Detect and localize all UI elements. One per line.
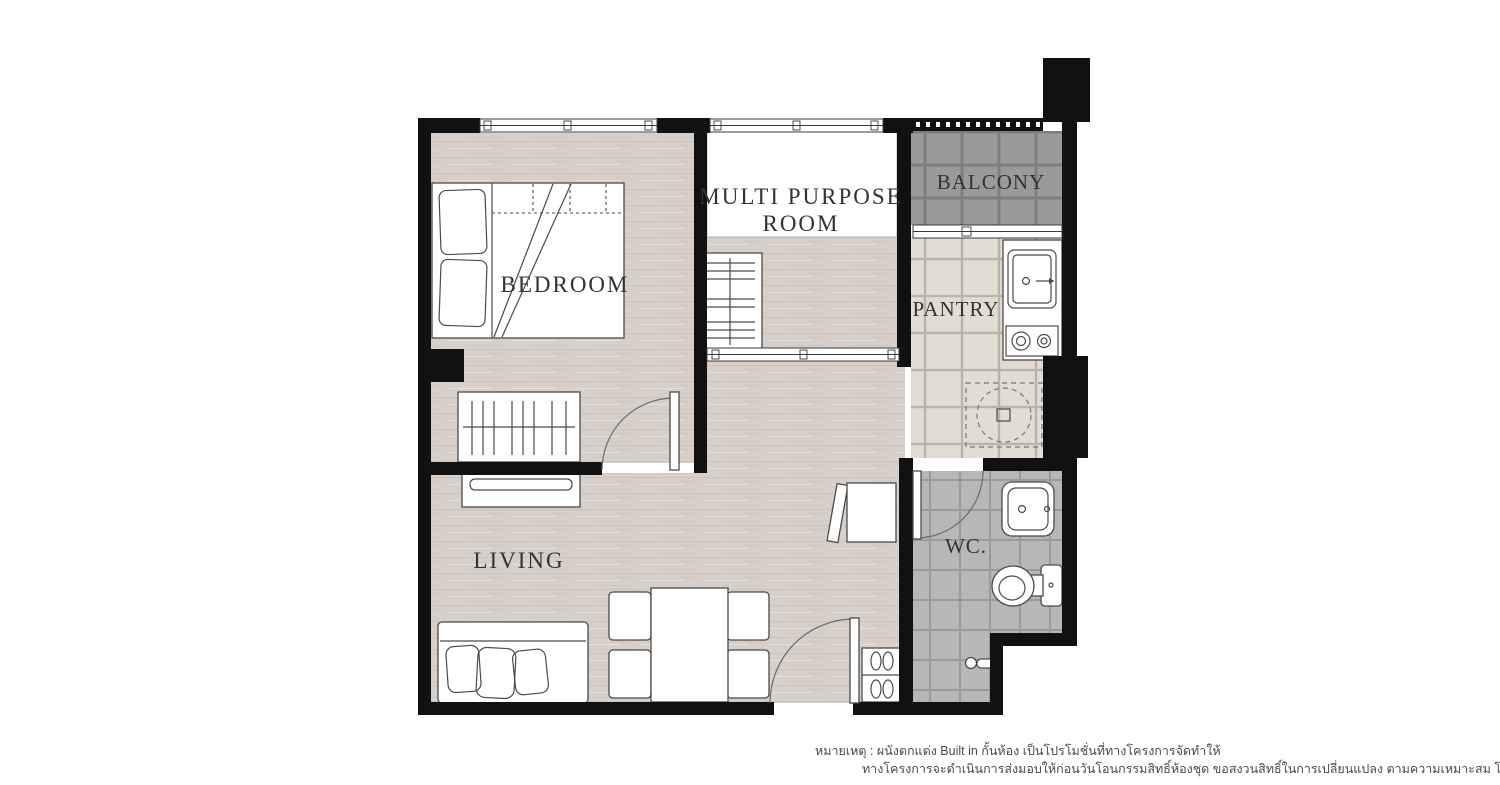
wall-top (418, 118, 480, 133)
wall-bedroom-bottom (430, 462, 602, 475)
shoe-cabinet-icon (862, 648, 903, 702)
toilet-icon (992, 565, 1062, 606)
bedroom-window (480, 119, 657, 132)
multi-purpose-window (710, 119, 883, 132)
dining-chair-icon (727, 592, 769, 640)
wall-column-top-right (1043, 58, 1090, 122)
wall-wc-left (899, 458, 913, 715)
desk-icon (827, 483, 896, 543)
wall-bottom (853, 702, 1003, 715)
closet-icon (700, 253, 762, 349)
sofa-icon (438, 622, 588, 703)
wall-wc-top (983, 458, 1062, 471)
multi-purpose-label-line2: ROOM (762, 211, 839, 236)
wall-right (1062, 120, 1077, 358)
hall-floor (707, 349, 905, 475)
wall-pantry-left (897, 118, 911, 367)
wall-bedroom-divider (694, 118, 707, 473)
tv-console-icon (462, 474, 580, 507)
balcony-sliding-door (913, 225, 1062, 238)
living-label: LIVING (473, 548, 564, 573)
dining-chair-icon (609, 650, 651, 698)
floor-plan-page: BEDROOM MULTI PURPOSE ROOM BALCONY PANTR… (0, 0, 1500, 785)
bedroom-label: BEDROOM (500, 272, 629, 297)
wardrobe-icon (458, 392, 580, 462)
wall-step (990, 633, 1077, 646)
balcony-railing (913, 118, 1043, 131)
multi-purpose-label-line1: MULTI PURPOSE (699, 184, 902, 209)
disclaimer-note-line1: หมายเหตุ : ผนังตกแต่ง Built in กั้นห้อง … (815, 742, 1221, 760)
dining-table-icon (651, 588, 728, 702)
balcony-label: BALCONY (937, 170, 1046, 194)
kitchen-counter-icon (1003, 240, 1062, 360)
dining-chair-icon (727, 650, 769, 698)
pantry-label: PANTRY (913, 297, 1000, 321)
floor-plan: BEDROOM MULTI PURPOSE ROOM BALCONY PANTR… (0, 0, 1500, 785)
wall-column-right (1043, 356, 1088, 458)
washbasin-icon (1002, 482, 1054, 536)
bed-icon (432, 183, 624, 338)
dining-chair-icon (609, 592, 651, 640)
wall-bottom (418, 702, 774, 715)
wall-left (418, 118, 431, 715)
wall-right (1062, 458, 1077, 633)
wall-column-left (418, 349, 464, 382)
disclaimer-note-line2: ทางโครงการจะดำเนินการส่งมอบให้ก่อนวันโอน… (862, 760, 1500, 778)
wc-label: WC. (945, 534, 987, 558)
multi-purpose-partition-window (707, 348, 899, 361)
